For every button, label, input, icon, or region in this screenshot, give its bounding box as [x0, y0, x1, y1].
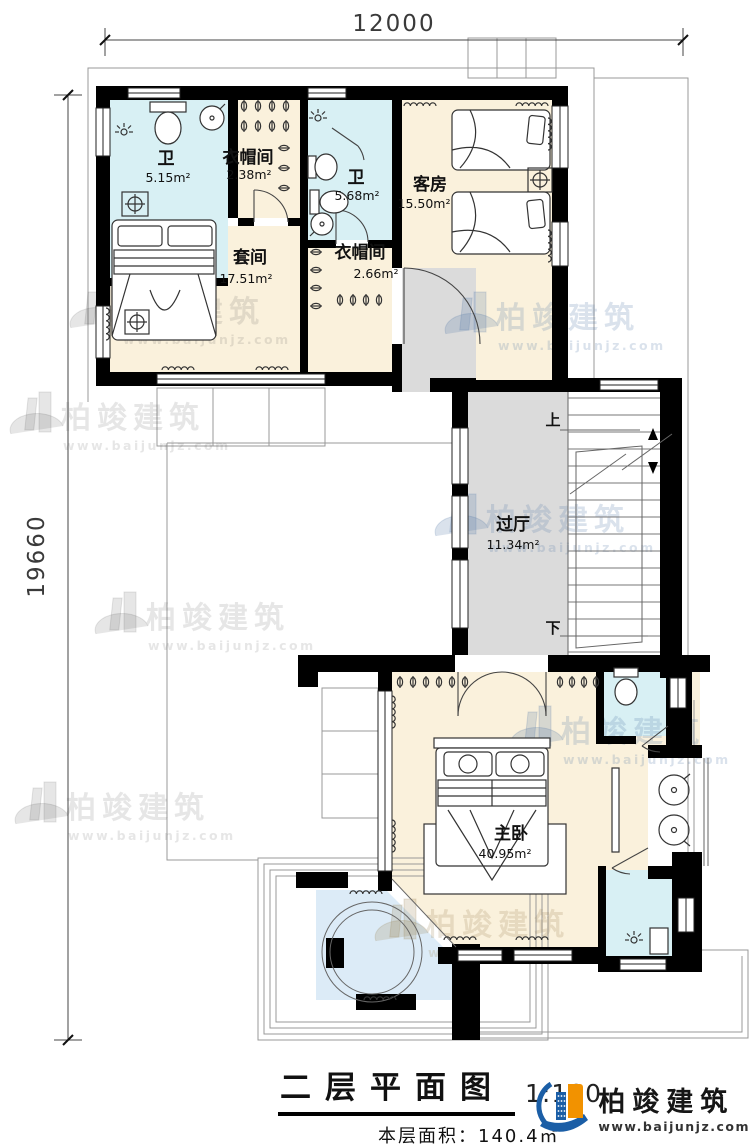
svg-text:11.34m²: 11.34m²: [487, 537, 540, 552]
svg-text:15.50m²: 15.50m²: [398, 196, 451, 211]
window: [452, 560, 468, 628]
svg-text:www.baijunjz.com: www.baijunjz.com: [498, 338, 666, 353]
window: [620, 959, 666, 970]
plan-title: 二层平面图: [278, 1062, 515, 1116]
svg-text:衣帽间: 衣帽间: [223, 147, 274, 168]
stair-up-label: 上: [545, 411, 560, 429]
window: [128, 88, 180, 98]
watermark: 柏竣建筑www.baijunjz.com: [95, 592, 315, 653]
window: [458, 950, 502, 961]
svg-text:www.baijunjz.com: www.baijunjz.com: [63, 438, 231, 453]
logo-brand-text: 柏竣建筑: [598, 1080, 750, 1119]
company-logo: 柏竣建筑 www.baijunjz.com: [536, 1076, 750, 1138]
window: [678, 898, 694, 932]
sink-icon: [308, 154, 337, 180]
dimension-left-value: 19660: [24, 514, 50, 597]
dimension-left: 19660: [24, 90, 82, 1045]
window: [157, 374, 325, 384]
tv-cabinet: [612, 768, 619, 852]
floor-plan-sheet: 柏竣建筑www.baijunjz.com 柏竣建筑www.baijunjz.co…: [0, 0, 750, 1148]
svg-text:5.68m²: 5.68m²: [334, 188, 379, 203]
svg-text:5.15m²: 5.15m²: [145, 170, 190, 185]
window: [670, 678, 686, 708]
svg-text:套间: 套间: [232, 247, 267, 268]
svg-text:卫: 卫: [348, 168, 365, 188]
room-label-cloak1: 衣帽间2.38m²: [223, 147, 274, 182]
svg-text:主卧: 主卧: [494, 823, 528, 844]
svg-text:2.38m²: 2.38m²: [226, 167, 271, 182]
svg-text:柏竣建筑: 柏竣建筑: [61, 401, 205, 436]
watermark: 柏竣建筑www.baijunjz.com: [15, 782, 235, 843]
stair-down-label: 下: [545, 619, 560, 637]
toilet-icon: [614, 668, 638, 705]
window: [600, 380, 658, 390]
logo-building-icon: [536, 1076, 592, 1138]
window: [378, 691, 392, 871]
svg-text:www.baijunjz.com: www.baijunjz.com: [68, 828, 236, 843]
svg-text:2.66m²: 2.66m²: [353, 266, 398, 281]
title-block: 二层平面图 1:100 本层面积：140.4㎡ 柏竣建筑 www.baijunj…: [278, 1062, 750, 1148]
window: [552, 222, 568, 266]
window: [514, 950, 572, 961]
shower-seat: [650, 928, 668, 954]
window: [96, 108, 110, 156]
watermark: 柏竣建筑www.baijunjz.com: [10, 392, 230, 453]
svg-text:过厅: 过厅: [496, 515, 530, 535]
window: [552, 106, 568, 168]
window: [452, 428, 468, 484]
floor-plan-drawing: 柏竣建筑www.baijunjz.com 柏竣建筑www.baijunjz.co…: [0, 0, 750, 1148]
bed-icon: [452, 110, 550, 170]
svg-text:www.baijunjz.com: www.baijunjz.com: [563, 752, 731, 767]
svg-text:衣帽间: 衣帽间: [335, 242, 386, 263]
logo-url-text: www.baijunjz.com: [598, 1119, 750, 1134]
svg-text:客房: 客房: [412, 174, 447, 195]
svg-text:40.95m²: 40.95m²: [479, 846, 532, 861]
svg-text:柏竣建筑: 柏竣建筑: [66, 791, 210, 826]
dimension-top: 12000: [100, 11, 688, 56]
svg-text:卫: 卫: [158, 149, 175, 169]
svg-text:www.baijunjz.com: www.baijunjz.com: [148, 638, 316, 653]
svg-text:柏竣建筑: 柏竣建筑: [146, 601, 290, 636]
washer-icon: [310, 213, 333, 236]
window: [308, 88, 346, 98]
svg-text:17.51m²: 17.51m²: [220, 271, 273, 286]
dimension-top-value: 12000: [352, 11, 435, 37]
bed-icon: [452, 192, 550, 254]
window: [452, 496, 468, 548]
